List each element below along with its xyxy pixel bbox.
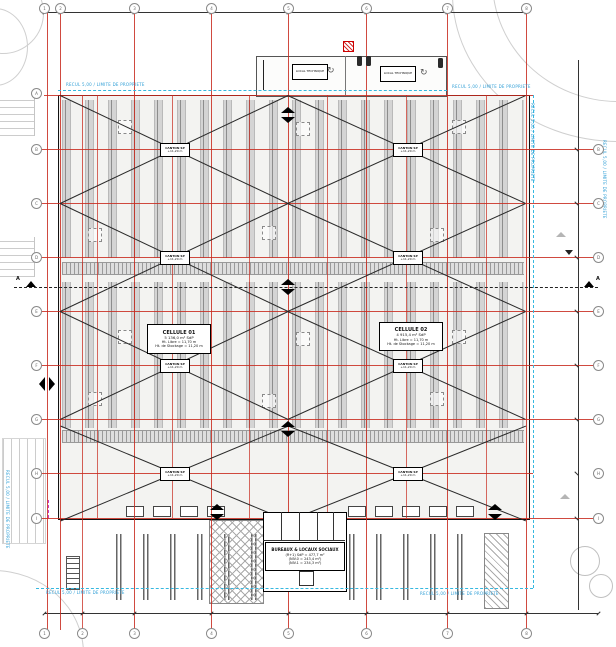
grid-axis-bubble: C (593, 198, 604, 209)
office-partition (281, 512, 282, 540)
grid-axis-bubble: 2 (77, 628, 88, 639)
access-ramp-left (209, 520, 264, 604)
site-plan-drawing: LOCAL TECHNIQUE LOCAL TECHNIQUE ↻ ↻ BURE… (0, 0, 616, 647)
canton-level: +11,20 m (401, 366, 416, 369)
grid-axis-bubble: E (31, 306, 42, 317)
annex-room-label: LOCAL TECHNIQUE (292, 64, 328, 80)
cell-02-label-box: CELLULE 02 4 915,4 m² SdP Ht. Libre = 11… (379, 322, 443, 351)
canton-sp-label: CANTON SP+11,20 m (160, 359, 190, 373)
access-ramp-right (484, 533, 509, 609)
grid-axis-bubble: F (593, 360, 604, 371)
grid-axis-bubble: E (593, 306, 604, 317)
canton-sp-label: CANTON SP+11,20 m (160, 251, 190, 265)
canton-sp-label: CANTON SP+11,20 m (393, 251, 423, 265)
grid-axis-bubble: C (31, 198, 42, 209)
flow-arrow-icon (281, 289, 295, 295)
grid-line-horizontal (40, 149, 594, 150)
storage-racks-lower (62, 282, 524, 428)
grid-line-horizontal (40, 257, 594, 258)
level-marker-icon (560, 494, 570, 499)
canton-level: +11,20 m (168, 258, 183, 261)
skylight-vent (262, 394, 276, 408)
grid-axis-bubble: 6 (361, 628, 372, 639)
grid-axis-bubble: 4 (206, 3, 217, 14)
dock-door (348, 506, 366, 517)
dock-door (429, 506, 447, 517)
office-partition (333, 512, 334, 540)
annex-room-label: LOCAL TECHNIQUE (380, 66, 416, 82)
grid-line-vertical-major (47, 12, 48, 630)
canton-level: +11,20 m (168, 150, 183, 153)
office-partition (317, 512, 318, 540)
grid-axis-bubble: F (31, 360, 42, 371)
grid-line-vertical-major (366, 12, 367, 630)
cross-aisle-rack-band (62, 262, 524, 275)
flow-arrow-icon (281, 421, 295, 427)
flow-arrow-icon (281, 117, 295, 123)
grid-line-vertical-major (134, 12, 135, 630)
grid-line-vertical-major (211, 12, 212, 630)
boundary-setback-label: RECUL 5,00 / LIMITE DE PROPRIETE (452, 84, 531, 89)
canton-level: +11,20 m (401, 474, 416, 477)
section-label: A (596, 276, 600, 282)
canton-sp-label: CANTON SP+11,20 m (393, 359, 423, 373)
grid-line-vertical-minor (82, 95, 83, 630)
canton-level: +11,20 m (401, 150, 416, 153)
grid-axis-bubble: 6 (361, 3, 372, 14)
grid-line-vertical-major (447, 12, 448, 630)
utility-line-magenta (48, 500, 49, 518)
grid-axis-bubble: 5 (283, 628, 294, 639)
canton-sp-label: CANTON SP+11,20 m (393, 143, 423, 157)
boundary-setback-label: RECUL 5,00 / LIMITE DE PROPRIETE (46, 590, 125, 595)
flow-arrow-icon (488, 514, 502, 520)
grid-axis-bubble: 7 (442, 628, 453, 639)
flow-arrow-icon (281, 279, 295, 285)
boundary-setback-label: RECUL 5,00 / LIMITE DE PROPRIETE (420, 591, 499, 596)
car-symbol (438, 58, 443, 68)
car-symbol (366, 56, 371, 66)
dock-door (456, 506, 474, 517)
grid-line-vertical-minor (406, 95, 407, 518)
dimension-tick (596, 611, 600, 615)
grid-axis-bubble: A (31, 88, 42, 99)
grid-line-vertical-minor (327, 95, 328, 518)
grid-axis-bubble: H (31, 468, 42, 479)
flow-arrow-icon (210, 504, 224, 510)
parking-strip (0, 96, 35, 136)
section-arrow-icon (26, 281, 36, 287)
grid-line-horizontal (40, 203, 594, 204)
section-label: A (16, 276, 20, 282)
dock-door (402, 506, 420, 517)
flow-arrow-icon (39, 377, 45, 391)
canton-level: +11,20 m (168, 366, 183, 369)
grid-line-vertical-minor (249, 95, 250, 518)
grid-line-vertical-major (60, 12, 61, 630)
grid-axis-bubble: 5 (283, 3, 294, 14)
grid-line-horizontal (40, 419, 594, 420)
grid-axis-bubble: 1 (39, 628, 50, 639)
canton-sp-label: CANTON SP+11,20 m (160, 143, 190, 157)
grid-axis-bubble: 4 (206, 628, 217, 639)
dock-door (375, 506, 393, 517)
flow-arrow-icon (281, 107, 295, 113)
grid-axis-bubble: I (593, 513, 604, 524)
flow-arrow-icon (210, 514, 224, 520)
tree-symbol (589, 574, 613, 598)
annex-dimension-line (263, 60, 264, 90)
grid-axis-bubble: G (31, 414, 42, 425)
flow-arrow-icon (49, 377, 55, 391)
section-arrow-icon (584, 281, 594, 287)
car-symbol (357, 56, 362, 66)
grid-axis-bubble: 8 (521, 628, 532, 639)
skylight-vent (296, 332, 310, 346)
turning-arrow-icon: ↻ (420, 68, 428, 78)
parking-strip (0, 237, 35, 277)
level-marker-icon (565, 250, 573, 255)
hydrant-symbol (343, 41, 354, 52)
grid-axis-bubble: 3 (129, 3, 140, 14)
level-marker-icon (556, 232, 566, 237)
grid-axis-bubble: D (31, 252, 42, 263)
grid-axis-bubble: 2 (55, 3, 66, 14)
boundary-setback-label: RECUL 5,00 / LIMITE DE PROPRIETE (530, 103, 535, 182)
skylight-vent (88, 228, 102, 242)
grid-axis-bubble: G (593, 414, 604, 425)
office-partition (299, 512, 300, 540)
flow-arrow-icon (488, 504, 502, 510)
grid-line-vertical-minor (97, 95, 98, 518)
property-limit-line-bottom (36, 588, 533, 589)
dock-door (126, 506, 144, 517)
turning-arrow-icon: ↻ (327, 66, 335, 76)
grid-axis-bubble: 7 (442, 3, 453, 14)
skylight-vent (430, 392, 444, 406)
cell-02-height-storage: Ht. de Stockage = 11,20 m (387, 342, 435, 346)
cell-01-label-box: CELLULE 01 5 136,0 m² SdP Ht. Libre = 11… (147, 324, 211, 354)
grid-axis-bubble: I (31, 513, 42, 524)
grid-axis-bubble: 3 (129, 628, 140, 639)
office-area-line: (NIV.1 = 234,3 m²) (289, 561, 322, 565)
property-limit-line-top (58, 90, 447, 91)
boundary-setback-label: RECUL 5,00 / LIMITE DE PROPRIETE (5, 470, 10, 549)
office-stair-core (299, 571, 314, 586)
cell-01-height-storage: Ht. de Stockage = 11,20 m (155, 344, 203, 348)
grid-line-horizontal (40, 311, 594, 312)
dock-door (153, 506, 171, 517)
canton-sp-label: CANTON SP+11,20 m (393, 467, 423, 481)
grid-line-vertical-minor (486, 95, 487, 518)
grid-line-vertical-minor (172, 95, 173, 518)
dimension-line-bottom (44, 613, 598, 614)
grid-axis-bubble: 1 (39, 3, 50, 14)
grid-axis-bubble: 8 (521, 3, 532, 14)
boundary-setback-label: RECUL 5,00 / LIMITE DE PROPRIETE (66, 82, 145, 87)
section-cut-line (14, 287, 598, 288)
flow-arrow-icon (281, 431, 295, 437)
grid-line-horizontal (40, 365, 594, 366)
office-label-box: BUREAUX & LOCAUX SOCIAUX (R+1) SdP = 477… (265, 542, 345, 571)
grid-axis-bubble: D (593, 252, 604, 263)
tree-symbol (570, 546, 600, 576)
canton-sp-label: CANTON SP+11,20 m (160, 467, 190, 481)
annex-room-label-text: LOCAL TECHNIQUE (384, 72, 412, 76)
dimension-line-right (578, 60, 579, 610)
grid-axis-bubble: B (593, 144, 604, 155)
grid-line-horizontal (40, 473, 533, 474)
dock-door (180, 506, 198, 517)
grid-line-vertical-major (526, 12, 527, 630)
skylight-vent (262, 226, 276, 240)
grid-axis-bubble: H (593, 468, 604, 479)
grid-axis-bubble: B (31, 144, 42, 155)
canton-level: +11,20 m (401, 258, 416, 261)
annex-room-label-text: LOCAL TECHNIQUE (296, 70, 324, 74)
canton-level: +11,20 m (168, 474, 183, 477)
office-partition (263, 540, 345, 541)
exterior-stair (66, 556, 80, 590)
skylight-vent (296, 122, 310, 136)
